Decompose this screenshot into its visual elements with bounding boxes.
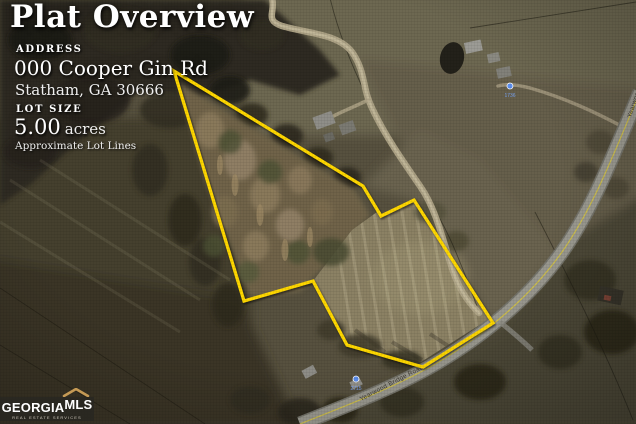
lot-size-value: 5.00 (14, 115, 61, 139)
address-label: ADDRESS (16, 44, 82, 55)
logo-roof-arc-icon (62, 388, 90, 397)
logo-wordmark: GEORGIA MLS (0, 398, 94, 414)
address-street: 000 Cooper Gin Rd (14, 56, 208, 80)
address-marker-label: 1736 (504, 93, 515, 99)
address-marker-label: 2715 (350, 386, 361, 392)
page-title: Plat Overview (10, 0, 254, 35)
lot-size-value-row: 5.00acres (14, 115, 106, 139)
lot-size-label: LOT SIZE (16, 104, 82, 115)
logo-tagline: REAL ESTATE SERVICES (0, 415, 94, 420)
approximate-lot-lines-note: Approximate Lot Lines (15, 140, 136, 152)
logo-text-mls: MLS (64, 397, 92, 412)
georgia-mls-logo: GEORGIA MLS REAL ESTATE SERVICES (0, 397, 94, 421)
logo-text-georgia: GEORGIA (2, 401, 65, 414)
lot-size-unit: acres (65, 120, 106, 138)
address-city-state-zip: Statham, GA 30666 (15, 81, 164, 99)
plat-overview-image: Yearwood Bridge Road Yearwood Bridge Roa… (0, 0, 636, 424)
